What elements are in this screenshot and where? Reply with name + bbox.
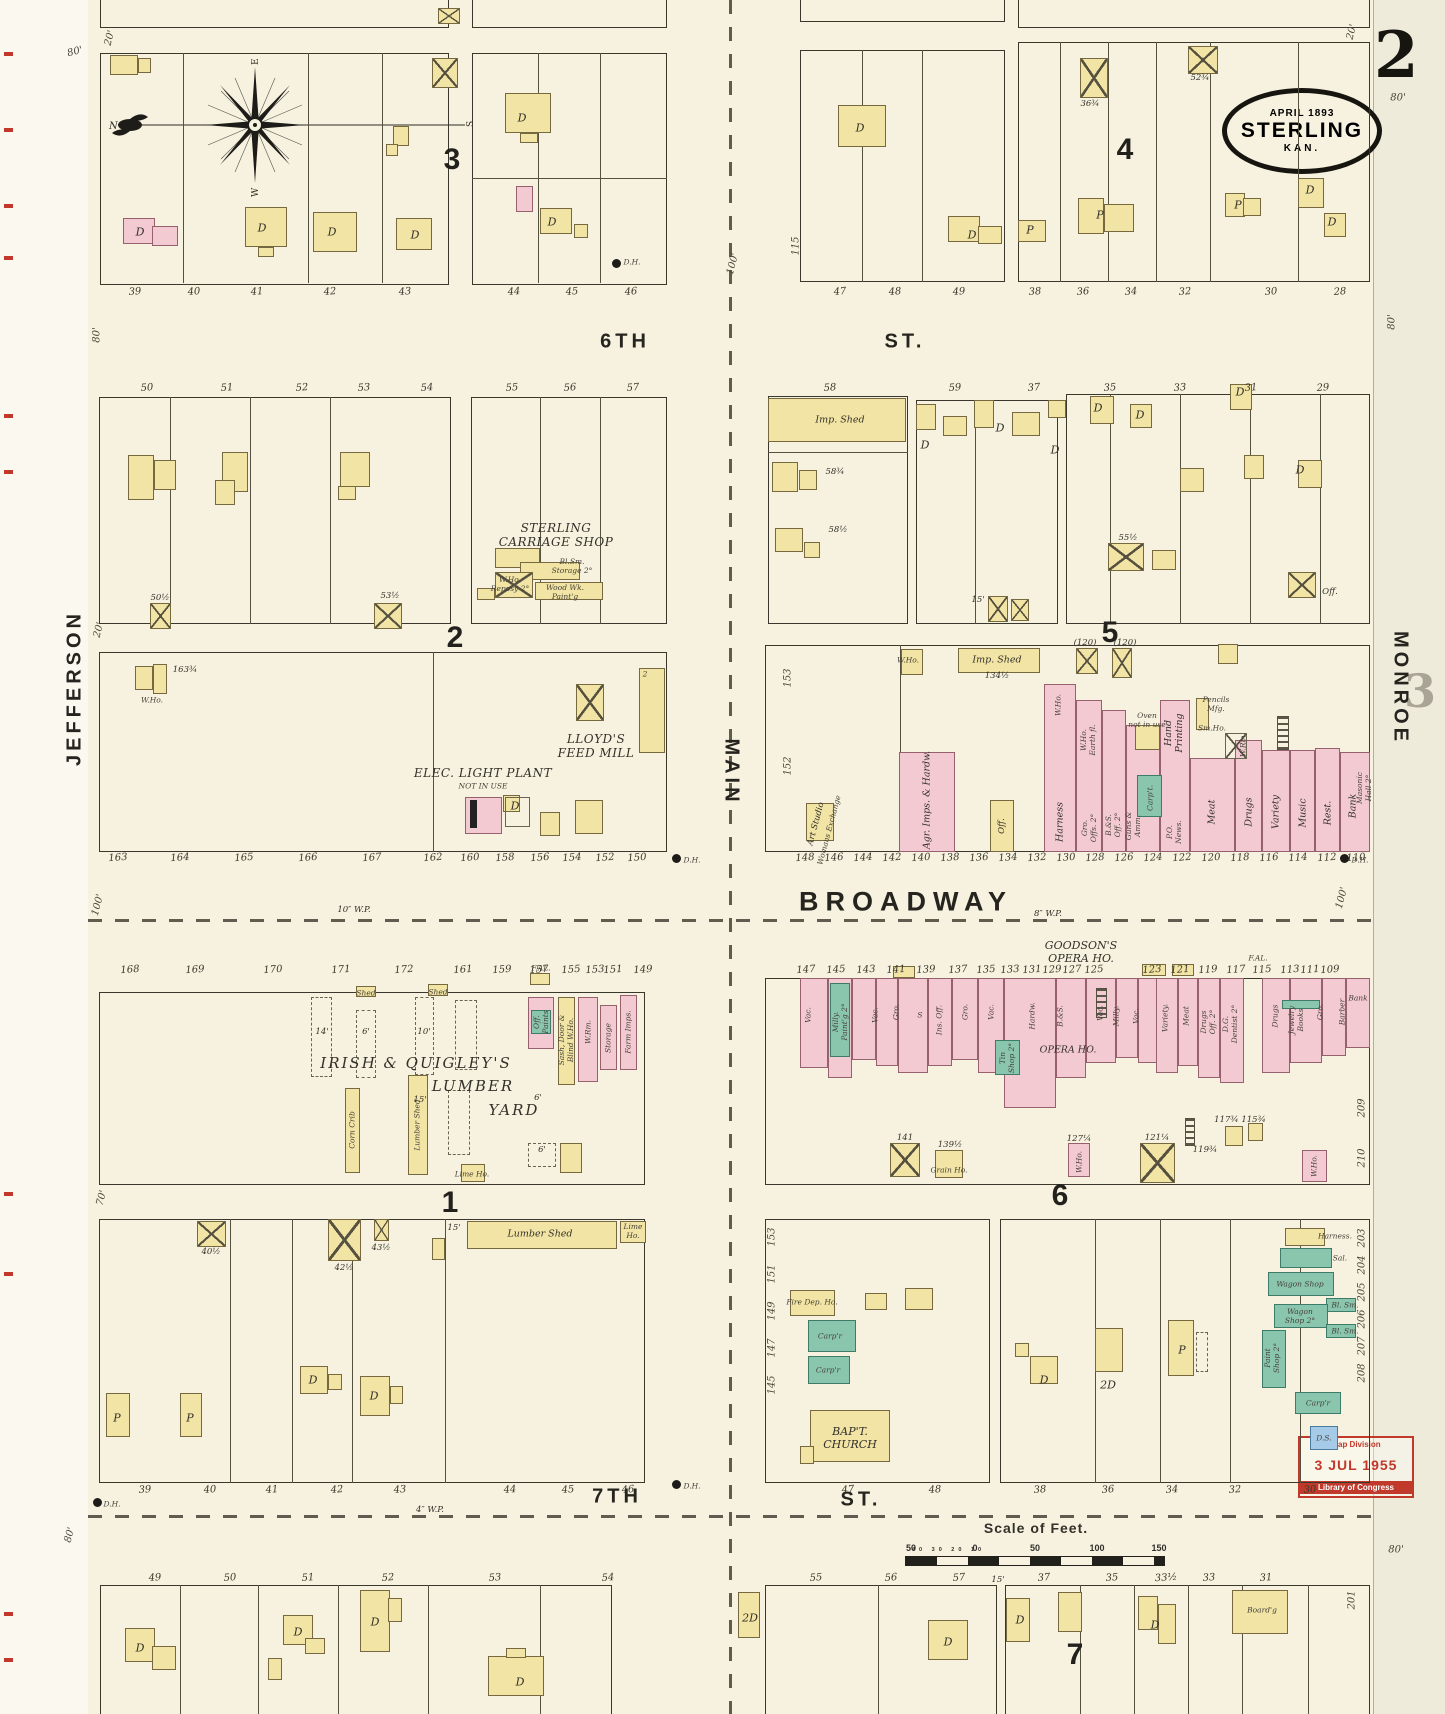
map-label: 80' [1387,314,1398,329]
building [258,247,274,257]
lot-number: 143 [856,964,876,976]
lot-number: 47 [833,286,846,298]
map-label: Ins. Off. [935,1005,944,1035]
lot-number: 35 [1105,1572,1118,1584]
map-label: 153 [783,668,794,687]
building [1080,58,1108,98]
street-centerline [88,1515,1372,1518]
lot-number: 159 [492,964,512,976]
map-label: Drugs [1244,797,1255,826]
lot-number: 38 [1033,1484,1046,1496]
building [772,462,798,492]
map-label: Imp. Shed [815,415,864,426]
building [438,8,460,24]
map-label: Storage [604,1023,613,1053]
building [1248,1123,1263,1141]
building [1076,648,1098,674]
map-label: P [1178,1344,1185,1357]
map-label: Bl.Sm. Storage 2° [552,557,593,575]
map-label: 36¾ [1080,99,1099,109]
map-label: ELEC. LIGHT PLANT [414,766,552,780]
building [800,978,828,1068]
sheet-number: 2 [1374,18,1419,93]
building [1140,1143,1175,1183]
map-label: Meat [1207,800,1218,825]
map-label: P [1096,209,1103,222]
lot-number: 112 [1317,852,1337,864]
lot-number: 54 [420,382,433,394]
map-label: D [370,1390,379,1403]
lot-number: 57 [626,382,639,394]
map-label: W.Ho. Reposy 2° [491,575,529,593]
lot-number: 49 [952,286,965,298]
map-label: Wagon Shop [1276,1280,1323,1289]
map-label: 53½ [380,591,399,601]
city-block-outline [472,0,667,28]
building [138,58,151,73]
lot-number: 119 [1198,964,1218,976]
lot-number: 151 [603,964,623,976]
lot-number: 140 [911,852,931,864]
lot-number: 48 [928,1484,941,1496]
map-label: JEFFERSON [64,610,87,766]
map-label: 204 [1357,1255,1368,1274]
building [1346,978,1370,1048]
map-label: IRISH & QUIGLEY'S [320,1054,511,1072]
map-label: 6' [362,1027,370,1037]
lot-line [1308,1585,1309,1714]
hydrant-dot [93,1498,102,1507]
edge-registration-tick [4,256,13,260]
map-label: W.Ho. Earth fl. [1079,724,1097,755]
scale-label: Scale of Feet. [984,1520,1088,1536]
lot-number: 45 [565,286,578,298]
edge-registration-tick [4,128,13,132]
map-label: 10' [417,1027,430,1037]
building [390,1386,403,1404]
map-label: W.Ho. [1310,1155,1319,1177]
scale-tick: 0 [972,1543,977,1553]
building [1158,1604,1176,1644]
building [154,460,176,490]
map-label: D [1328,216,1337,229]
building [374,603,402,629]
lot-number: 165 [234,852,254,864]
lot-line [922,50,923,282]
map-label: 100' [725,252,741,276]
city-block-outline [472,53,667,285]
map-label: 163¾ [173,665,197,675]
lot-line [230,1219,231,1483]
map-label: Hardw. [1028,1002,1037,1029]
map-label: Off. [1322,587,1338,597]
map-label: D [921,439,930,452]
map-label: Drugs [1271,1004,1280,1027]
building [1188,46,1218,74]
map-label: 6' [538,1145,546,1155]
lot-number: 38 [1028,286,1041,298]
lot-number: 158 [495,852,515,864]
lot-number: 125 [1084,964,1104,976]
lot-number: 31 [1259,1572,1272,1584]
map-label: Lime Ho. [624,1222,643,1240]
map-label: Grain Ho. [931,1166,968,1175]
lot-number: 41 [265,1484,278,1496]
building [432,58,458,88]
building [1015,1343,1029,1357]
map-label: W.Ho. [897,656,919,665]
city-block-outline [100,53,449,285]
map-label: B.&S. [1056,1005,1065,1027]
map-label: 20' [92,621,107,639]
map-label: Carp'r [818,1332,842,1341]
lot-line [538,53,539,283]
map-label: Rest. [1323,801,1334,826]
lot-number: 42 [323,286,336,298]
left-margin [0,0,88,1714]
building [448,1090,470,1155]
lot-number: 118 [1230,852,1250,864]
map-label: 203 [1357,1228,1368,1247]
lot-number: 155 [561,964,581,976]
map-label: P.O. News. [1165,820,1183,844]
edge-registration-tick [4,470,13,474]
lot-line [1060,42,1061,282]
lot-number: 37 [1037,1572,1050,1584]
lot-number: 156 [530,852,550,864]
map-label: W.Ho. [1075,1151,1084,1173]
building [505,93,551,133]
lot-line [1298,42,1299,282]
lot-number: 154 [562,852,582,864]
building [775,528,803,552]
lot-number: 124 [1143,852,1163,864]
lot-line [258,1585,259,1714]
lot-number: 44 [503,1484,516,1496]
lot-number: 37 [1027,382,1040,394]
scale-tick: 50 [1030,1543,1040,1553]
building [1288,572,1316,598]
building [305,1638,325,1654]
lot-number: 167 [362,852,382,864]
building [800,1446,814,1464]
lot-number: 166 [298,852,318,864]
lot-number: 53 [488,1572,501,1584]
building [374,1219,389,1241]
lot-line [180,1585,181,1714]
lot-number: 45 [561,1484,574,1496]
building [1280,1248,1332,1268]
building [575,800,603,834]
lot-number: 121 [1170,964,1190,976]
lot-number: 145 [826,964,846,976]
map-label: 2D [742,1612,758,1625]
building [1112,648,1132,678]
map-label: P [113,1412,120,1425]
map-label: Paint Shop 2° [1263,1343,1281,1373]
building [943,416,967,436]
building [639,668,665,753]
map-label: D.S. [1316,1434,1331,1443]
map-label: B.&S. Off. 2° [1104,813,1122,838]
lot-number: 129 [1042,964,1062,976]
lot-number: 33 [1173,382,1186,394]
building [1056,978,1086,1078]
lot-number: 150 [627,852,647,864]
lot-number: 162 [423,852,443,864]
map-label: D.H. [683,1482,700,1491]
lot-number: 52 [295,382,308,394]
lot-number: 39 [138,1484,151,1496]
map-label: 145 [767,1375,778,1394]
lot-number: 49 [148,1572,161,1584]
building [574,224,588,238]
map-label: D [1296,464,1305,477]
map-label: Carp't. [1146,785,1155,811]
map-label: 7 [1067,1638,1084,1672]
map-label: MONROE [1389,631,1412,745]
map-label: D [136,226,145,239]
map-label: OPERA HO. [1040,1045,1097,1056]
lot-line [382,53,383,283]
lot-number: 139 [916,964,936,976]
map-label: 55½ [1118,533,1137,543]
map-label: 70' [95,1189,110,1207]
building [328,1374,342,1390]
building [268,1658,282,1680]
lot-number: 163 [108,852,128,864]
lot-number: 33 [1202,1572,1215,1584]
map-label: 100' [1334,886,1350,910]
map-label: Gro. [961,1004,970,1020]
building [1243,198,1261,216]
building [152,226,178,246]
map-label: D [411,229,420,242]
map-label: Fire Dep. Ho. [786,1298,837,1307]
map-label: Gro. [892,1004,901,1020]
map-label: D [944,1636,953,1649]
building [560,1143,582,1173]
map-label: 15' [413,1095,426,1105]
map-label: 7TH [592,1486,642,1509]
building [804,542,820,558]
lot-number: 168 [120,964,140,976]
map-label: Lumber Shed [507,1229,572,1240]
edge-registration-tick [4,414,13,418]
map-label: 119¾ [1193,1145,1217,1155]
lot-line [975,400,976,624]
building [338,486,356,500]
lot-line [338,1585,339,1714]
lot-number: 34 [1124,286,1137,298]
map-label: Milly. [1112,1006,1121,1027]
building [150,603,171,629]
building [520,133,538,143]
map-label: 2 [643,670,648,679]
lot-number: 148 [795,852,815,864]
lot-number: 30 [1303,1484,1316,1496]
map-label: Gro. [1316,1004,1325,1020]
lot-number: 149 [633,964,653,976]
map-label: D.H. [103,1500,120,1509]
map-label: D [294,1626,303,1639]
lot-number: 51 [301,1572,314,1584]
lot-number: 164 [170,852,190,864]
lot-line [292,1219,293,1483]
map-label: LUMBER [432,1077,514,1095]
map-label: 58¾ [825,467,844,477]
lot-number: 161 [453,964,473,976]
map-label: D [548,216,557,229]
lot-line [1134,1585,1135,1714]
map-label: 127¼ [1067,1134,1091,1144]
map-label: 121¼ [1145,1133,1169,1143]
map-label: Vac. [1132,1008,1141,1024]
lot-number: 152 [595,852,615,864]
building [1058,1592,1082,1632]
lot-number: 127 [1062,964,1082,976]
map-label: D [1306,184,1315,197]
map-label: Sal. [1333,1254,1347,1263]
map-label: 117¾ 115¾ [1214,1115,1266,1125]
map-label: 6 [1052,1179,1069,1213]
building [799,470,817,490]
map-label: 80' [1390,93,1405,104]
building [1152,550,1176,570]
lot-number: 29 [1316,382,1329,394]
map-label: 50½ [150,593,169,603]
building [388,1598,402,1622]
lot-line [1108,42,1109,282]
map-label: 14' [315,1027,328,1037]
lot-number: 116 [1259,852,1279,864]
map-label: BROADWAY [799,887,1013,918]
lot-number: 51 [220,382,233,394]
map-label: 115 [791,236,802,255]
map-label: Milly. Paint'g 2° [831,1003,849,1040]
map-label: 100' [90,893,106,917]
city-block-outline [800,50,1005,282]
lot-number: 57 [952,1572,965,1584]
building [540,812,560,836]
map-label: W.Ho. [1054,694,1063,716]
map-label: Shed [356,989,375,998]
lot-line [1210,42,1211,282]
map-label: 6TH [600,331,650,354]
city-block-outline [100,0,449,28]
lot-number: 147 [796,964,816,976]
lot-line [308,53,309,283]
building [1244,455,1264,479]
map-label: W.Rm. [584,1020,593,1044]
map-label: D [1236,386,1245,399]
map-label: ST. [885,331,926,354]
edge-registration-tick [4,1658,13,1662]
map-label: Bl. Sm. [1331,1327,1358,1336]
lot-number: 122 [1172,852,1192,864]
building [988,596,1008,622]
lot-line [170,397,171,624]
map-label: 134½ [985,671,1009,681]
lot-number: 43 [393,1484,406,1496]
lot-number: 153 [585,964,605,976]
map-label: D [511,800,520,813]
building [128,455,154,500]
hydrant-dot [612,259,621,268]
lot-line [600,53,601,283]
lot-number: 115 [1252,964,1272,976]
edge-registration-tick [4,52,13,56]
building [898,978,928,1073]
lot-number: 109 [1320,964,1340,976]
lot-line [183,53,184,283]
map-label: Sm.Ho. [1198,724,1226,733]
map-label: D [1151,1619,1160,1632]
lot-line [1320,394,1321,624]
map-label: 139½ [938,1140,962,1150]
map-label: Corn Crib [348,1111,357,1149]
lot-number: 126 [1114,852,1134,864]
lot-line [1180,394,1181,624]
lot-number: 117 [1226,964,1246,976]
map-label: MAIN [720,738,743,805]
edge-registration-tick [4,1192,13,1196]
building [1104,204,1134,232]
map-label: Variety. [1161,1004,1170,1032]
map-label: Vac. [804,1007,813,1023]
map-label: 42½ [334,1263,353,1273]
map-label: D [1136,409,1145,422]
map-label: GOODSON'S OPERA HO. [1045,939,1117,965]
map-label: 141 [897,1133,913,1143]
lot-number: 44 [507,286,520,298]
map-label: Vac. [871,1007,880,1023]
map-label: STERLING CARRIAGE SHOP [499,521,614,549]
lot-number: 130 [1056,852,1076,864]
building [328,1219,361,1261]
scale-tick: 100 [1089,1543,1104,1553]
map-label: LLOYD'S FEED MILL [558,732,635,760]
map-label: 8″ W.P. [1034,909,1062,919]
lot-line [862,50,863,282]
map-label: 205 [1357,1282,1368,1301]
building [974,400,994,428]
building [1185,1118,1195,1146]
lot-number: 34 [1165,1484,1178,1496]
building [1012,412,1040,436]
map-label: Vac. [987,1004,996,1020]
lot-number: 56 [563,382,576,394]
lot-line [1156,42,1157,282]
lot-number: 59 [948,382,961,394]
lot-number: 33½ [1154,1572,1177,1585]
map-label: 210 [1357,1148,1368,1167]
lot-number: 144 [853,852,873,864]
lot-number: 40 [203,1484,216,1496]
lot-number: 30 [1264,286,1277,298]
building [890,1143,920,1177]
building [1180,468,1204,492]
scale-tick: 50 [906,1543,916,1553]
map-label: Shed [428,988,447,997]
lot-number: 135 [976,964,996,976]
map-label: 147 [767,1338,778,1357]
lot-number: 170 [263,964,283,976]
lot-number: 31 [1244,382,1257,394]
building [1196,1332,1208,1372]
map-label: 208 [1357,1363,1368,1382]
lot-number: 32 [1228,1484,1241,1496]
